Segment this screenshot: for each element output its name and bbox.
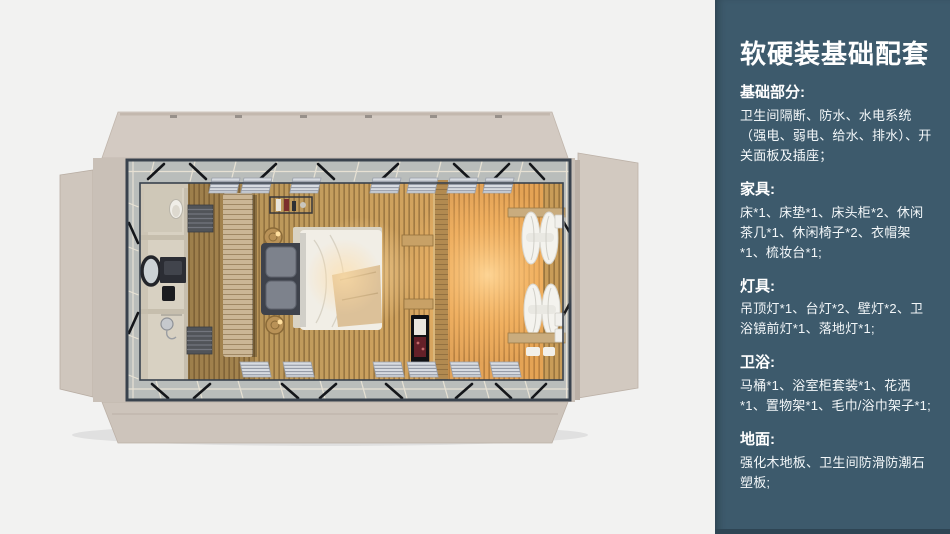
louvered-screen-bottom bbox=[187, 327, 212, 354]
spec-sidebar: 软硬装基础配套 基础部分: 卫生间隔断、防水、水电系统（强电、弱电、给水、排水）… bbox=[715, 0, 950, 534]
partition-shadow bbox=[252, 195, 257, 357]
folded-towel bbox=[526, 347, 540, 356]
bathroom-partition-shelf-1 bbox=[140, 235, 188, 240]
slide: 软硬装基础配套 基础部分: 卫生间隔断、防水、水电系统（强电、弱电、给水、排水）… bbox=[0, 0, 950, 534]
sidebar-footer-bar bbox=[715, 529, 950, 534]
section-heading: 卫浴: bbox=[740, 354, 934, 373]
roof-flap-top bbox=[102, 112, 568, 158]
headboard-partition bbox=[223, 193, 257, 357]
section-body: 强化木地板、卫生间防滑防潮石塑板; bbox=[740, 453, 934, 493]
pillow bbox=[266, 281, 296, 309]
section-body: 马桶*1、浴室柜套装*1、花洒*1、置物架*1、毛巾/浴巾架子*1; bbox=[740, 376, 934, 416]
wall-shelf bbox=[402, 235, 433, 246]
spec-section-lighting: 灯具: 吊顶灯*1、台灯*2、壁灯*2、卫浴镜前灯*1、落地灯*1; bbox=[740, 278, 934, 340]
table-lamp-glow bbox=[278, 320, 283, 325]
roof-flap-bottom bbox=[102, 402, 568, 443]
duvet-crease bbox=[300, 233, 306, 327]
pillow bbox=[266, 247, 296, 277]
bathroom-partition-shelf-2 bbox=[140, 309, 188, 314]
floorplan-image bbox=[30, 75, 670, 465]
section-body: 卫生间隔断、防水、水电系统（强电、弱电、给水、排水）、开关面板及插座； bbox=[740, 106, 934, 166]
sidebar-title: 软硬装基础配套 bbox=[740, 40, 934, 69]
wall-shelf bbox=[404, 299, 433, 309]
folded-towel bbox=[543, 347, 555, 356]
basin bbox=[164, 261, 182, 275]
spec-section-base: 基础部分: 卫生间隔断、防水、水电系统（强电、弱电、给水、排水）、开关面板及插座… bbox=[740, 84, 934, 166]
left-wall-flap bbox=[60, 170, 93, 397]
stool bbox=[162, 286, 175, 301]
louvered-screen-top bbox=[188, 205, 213, 232]
section-heading: 家具: bbox=[740, 181, 934, 200]
bed-glow bbox=[306, 239, 382, 315]
section-heading: 灯具: bbox=[740, 278, 934, 297]
spec-section-flooring: 地面: 强化木地板、卫生间防滑防潮石塑板; bbox=[740, 431, 934, 493]
roof-edge bbox=[120, 113, 550, 116]
section-body: 床*1、床垫*1、床头柜*2、休闲茶几*1、休闲椅子*2、衣帽架*1、梳妆台*1… bbox=[740, 203, 934, 263]
floorplan-illustration bbox=[30, 75, 670, 465]
table-lamp-glow bbox=[276, 232, 281, 237]
shower-head bbox=[161, 318, 173, 330]
section-body: 吊顶灯*1、台灯*2、壁灯*2、卫浴镜前灯*1、落地灯*1; bbox=[740, 299, 934, 339]
black-cabinet bbox=[411, 315, 429, 363]
section-heading: 地面: bbox=[740, 431, 934, 450]
spec-section-furniture: 家具: 床*1、床垫*1、床头柜*2、休闲茶几*1、休闲椅子*2、衣帽架*1、梳… bbox=[740, 181, 934, 263]
section-heading: 基础部分: bbox=[740, 84, 934, 103]
bathroom-block bbox=[140, 183, 188, 380]
nightstand-basket-bottom bbox=[266, 316, 284, 334]
room-interior bbox=[140, 178, 576, 380]
toilet bbox=[170, 200, 183, 219]
right-wall-flap bbox=[578, 153, 638, 398]
spec-section-bathroom: 卫浴: 马桶*1、浴室柜套装*1、花洒*1、置物架*1、毛巾/浴巾架子*1; bbox=[740, 354, 934, 416]
partition-edge-highlight bbox=[433, 180, 435, 380]
round-mirror bbox=[142, 257, 160, 285]
